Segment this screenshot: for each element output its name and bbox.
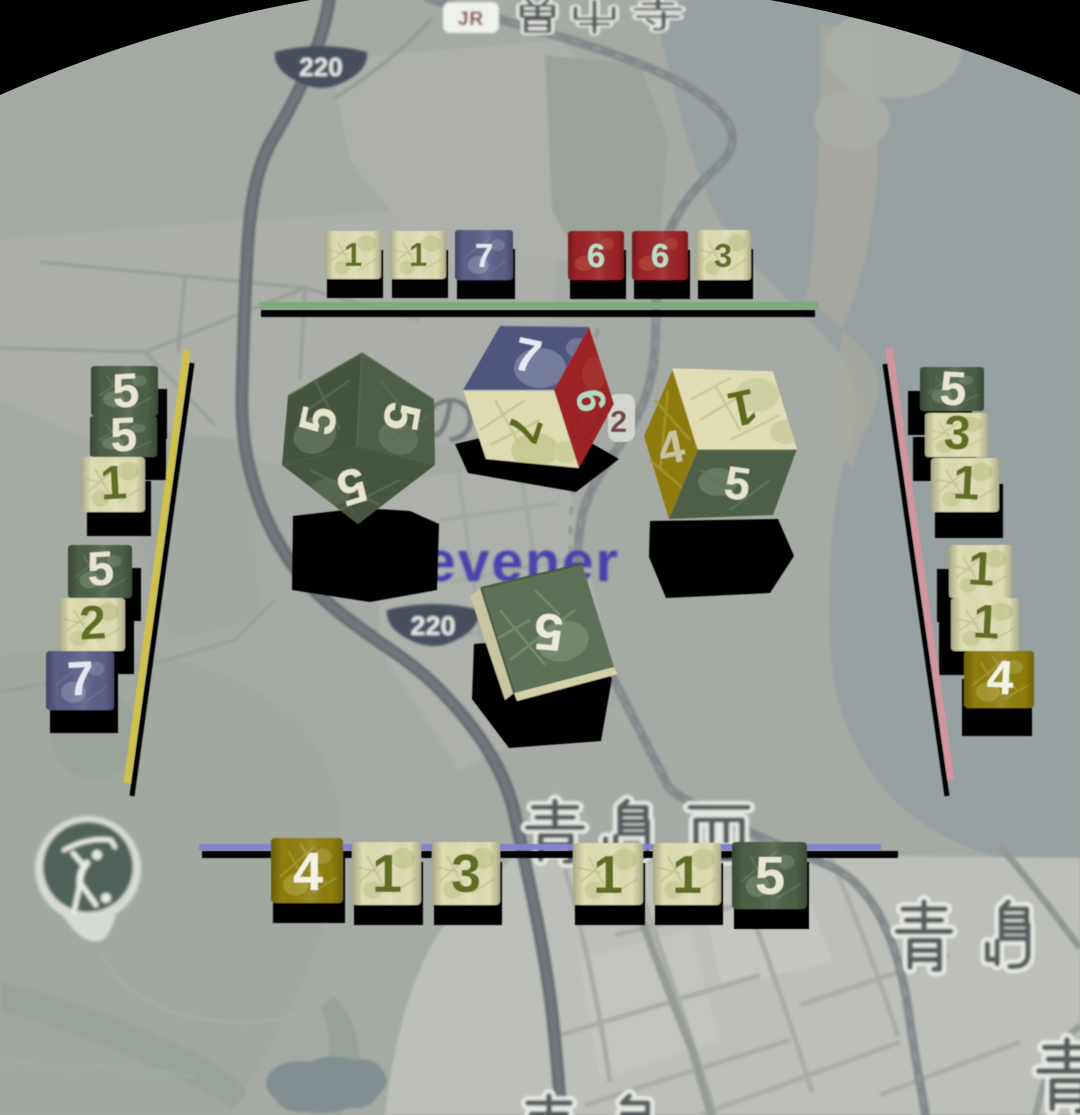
svg-text:3: 3 <box>451 844 481 904</box>
svg-text:4: 4 <box>986 651 1016 705</box>
svg-text:1: 1 <box>409 236 427 273</box>
svg-text:1: 1 <box>99 456 128 510</box>
svg-text:4: 4 <box>293 842 323 902</box>
svg-text:5: 5 <box>109 408 138 462</box>
svg-text:6: 6 <box>651 237 669 274</box>
svg-text:6: 6 <box>587 237 605 274</box>
svg-text:1: 1 <box>952 456 981 510</box>
svg-text:1: 1 <box>593 845 623 905</box>
svg-text:5: 5 <box>86 542 115 596</box>
svg-text:JR: JR <box>458 9 484 30</box>
svg-text:2: 2 <box>610 404 627 439</box>
svg-text:7: 7 <box>66 652 95 706</box>
svg-text:220: 220 <box>410 611 455 641</box>
svg-text:7: 7 <box>475 237 493 274</box>
svg-text:1: 1 <box>972 595 1001 649</box>
svg-text:1: 1 <box>344 236 362 273</box>
svg-text:3: 3 <box>943 406 972 460</box>
svg-text:2: 2 <box>78 596 107 650</box>
svg-text:5: 5 <box>755 846 785 906</box>
svg-text:5: 5 <box>532 601 566 661</box>
svg-text:3: 3 <box>714 237 732 274</box>
svg-text:1: 1 <box>372 844 402 904</box>
svg-text:1: 1 <box>967 542 996 596</box>
svg-text:220: 220 <box>299 52 342 82</box>
svg-text:1: 1 <box>672 845 702 905</box>
